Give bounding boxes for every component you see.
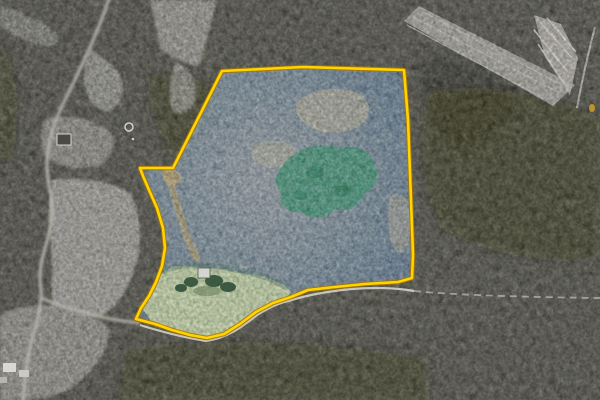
farm-building-1 xyxy=(3,363,16,372)
neighbor-house xyxy=(57,134,71,145)
yellow-marker xyxy=(589,104,595,112)
parcel-house xyxy=(198,268,210,278)
farm-building-2 xyxy=(19,370,29,377)
canopy-shadow-speckle xyxy=(0,0,600,400)
aerial-listing-photo xyxy=(0,0,600,400)
yard-bush-1 xyxy=(184,277,198,287)
yard-bush-4 xyxy=(175,284,187,292)
round-tank-dot xyxy=(132,138,135,141)
aerial-map-canvas xyxy=(0,0,600,400)
yard-bush-3 xyxy=(220,282,236,292)
farm-building-3 xyxy=(0,377,7,383)
house-yard-shade xyxy=(193,286,221,296)
